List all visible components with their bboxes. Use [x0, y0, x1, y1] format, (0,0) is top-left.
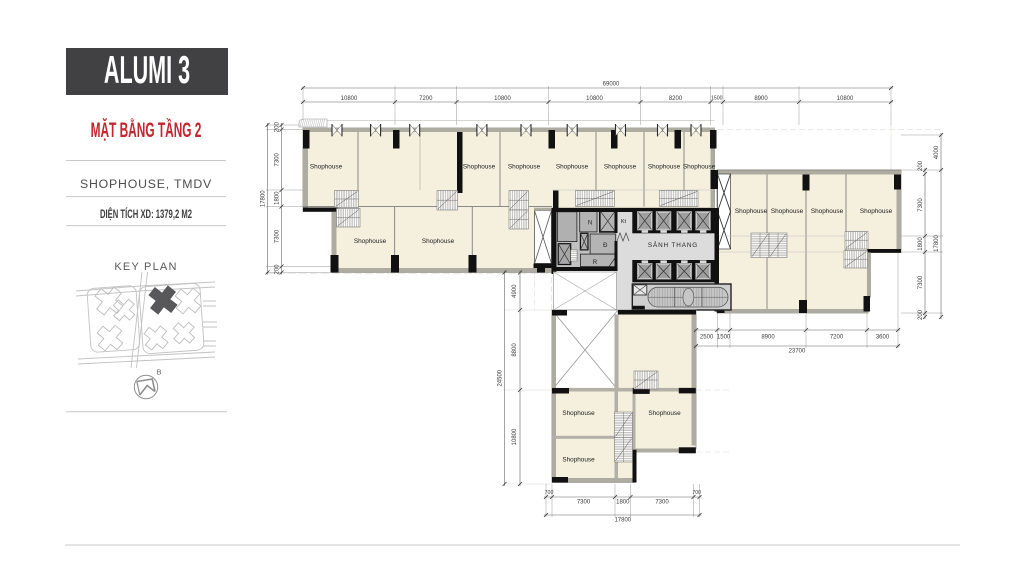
svg-text:Shophouse: Shophouse: [422, 238, 455, 245]
svg-text:Shophouse: Shophouse: [562, 410, 595, 417]
svg-text:17800: 17800: [934, 234, 940, 251]
svg-text:Shophouse: Shophouse: [556, 163, 589, 170]
svg-text:1800: 1800: [274, 191, 280, 205]
svg-text:7300: 7300: [918, 275, 924, 289]
svg-text:Shophouse: Shophouse: [771, 208, 804, 215]
svg-text:200: 200: [918, 309, 924, 320]
svg-text:700: 700: [545, 490, 554, 496]
svg-text:200: 200: [918, 160, 924, 171]
svg-text:7200: 7200: [419, 96, 433, 102]
svg-text:10800: 10800: [512, 428, 518, 445]
svg-text:Shophouse: Shophouse: [354, 238, 387, 245]
svg-text:7300: 7300: [274, 229, 280, 243]
svg-text:1500: 1500: [711, 96, 723, 102]
svg-text:8900: 8900: [761, 335, 775, 341]
svg-text:7300: 7300: [655, 500, 669, 506]
svg-text:1800: 1800: [918, 237, 924, 251]
svg-text:Shophouse: Shophouse: [508, 163, 541, 170]
svg-text:Đ: Đ: [603, 243, 608, 249]
svg-text:Shophouse: Shophouse: [860, 208, 893, 215]
svg-text:10800: 10800: [494, 96, 511, 102]
svg-text:23700: 23700: [789, 349, 806, 355]
svg-text:10800: 10800: [586, 96, 603, 102]
svg-text:1800: 1800: [616, 500, 630, 506]
svg-text:KEY PLAN: KEY PLAN: [114, 261, 177, 273]
svg-text:Shophouse: Shophouse: [735, 208, 768, 215]
svg-text:SHOPHOUSE, TMDV: SHOPHOUSE, TMDV: [80, 177, 212, 191]
svg-text:7300: 7300: [918, 198, 924, 212]
svg-text:MẶT BẰNG TẦNG 2: MẶT BẰNG TẦNG 2: [91, 119, 202, 142]
svg-text:Shophouse: Shophouse: [811, 208, 844, 215]
svg-text:7300: 7300: [577, 500, 591, 506]
svg-text:10800: 10800: [837, 96, 854, 102]
svg-text:Shophouse: Shophouse: [604, 163, 637, 170]
svg-text:DIỆN TÍCH XD: 1379,2 M2: DIỆN TÍCH XD: 1379,2 M2: [100, 207, 192, 221]
svg-text:17800: 17800: [260, 190, 266, 207]
svg-text:Shophouse: Shophouse: [562, 457, 595, 464]
svg-text:Shophouse: Shophouse: [683, 163, 716, 170]
svg-text:200: 200: [274, 264, 280, 275]
svg-text:2500: 2500: [700, 335, 714, 341]
svg-text:1500: 1500: [717, 335, 731, 341]
svg-text:7300: 7300: [274, 152, 280, 166]
svg-text:SẢNH THANG: SẢNH THANG: [648, 240, 698, 249]
svg-text:4900: 4900: [512, 284, 518, 298]
svg-text:B: B: [156, 368, 161, 377]
svg-text:N: N: [588, 221, 592, 227]
svg-text:3600: 3600: [876, 335, 890, 341]
svg-text:Shophouse: Shophouse: [648, 410, 681, 417]
svg-text:24500: 24500: [497, 369, 503, 386]
svg-text:Shophouse: Shophouse: [463, 163, 496, 170]
svg-text:10800: 10800: [341, 96, 358, 102]
svg-text:4000: 4000: [934, 145, 940, 159]
svg-text:200: 200: [274, 122, 280, 133]
svg-text:ALUMI 3: ALUMI 3: [104, 48, 190, 91]
svg-text:Shophouse: Shophouse: [648, 163, 681, 170]
svg-text:17800: 17800: [614, 518, 631, 524]
svg-text:8800: 8800: [512, 343, 518, 357]
svg-text:8900: 8900: [754, 96, 768, 102]
svg-text:R: R: [593, 260, 598, 266]
svg-text:69000: 69000: [603, 82, 620, 88]
svg-text:8200: 8200: [669, 96, 683, 102]
svg-text:Shophouse: Shophouse: [310, 163, 343, 170]
svg-text:Kt: Kt: [621, 219, 627, 225]
svg-text:7200: 7200: [830, 335, 844, 341]
svg-text:700: 700: [692, 490, 701, 496]
